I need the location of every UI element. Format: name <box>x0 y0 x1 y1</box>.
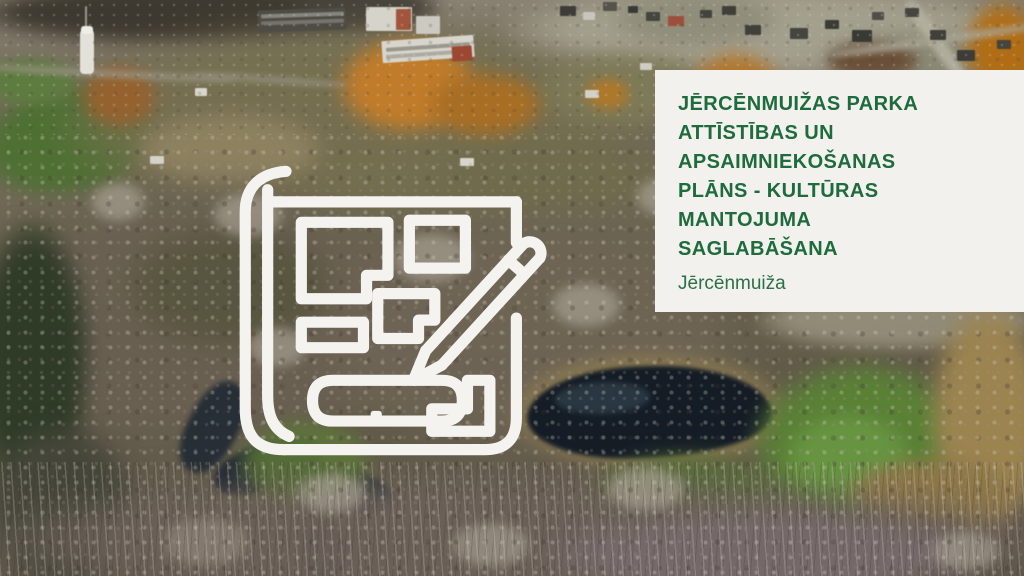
site-plan-with-pencil-icon <box>233 162 549 462</box>
plan-dot <box>371 411 382 422</box>
plan-room-small <box>409 220 465 268</box>
plan-room-step <box>378 294 435 339</box>
title-panel: JĒRCĒNMUIŽAS PARKA ATTĪSTĪBAS UN APSAIMN… <box>655 70 1024 312</box>
page-title: JĒRCĒNMUIŽAS PARKA ATTĪSTĪBAS UN APSAIMN… <box>678 90 1006 264</box>
plan-room-wide <box>301 322 363 347</box>
hero-banner: JĒRCĒNMUIŽAS PARKA ATTĪSTĪBAS UN APSAIMN… <box>0 0 1024 576</box>
site-plan-with-pencil-icon-svg <box>233 162 549 462</box>
pencil-eraser-divider <box>508 260 524 274</box>
pencil-eraser-cap <box>524 242 541 258</box>
plan-capsule <box>313 380 463 421</box>
plan-room-large <box>301 222 388 298</box>
blueprint-roll-inner <box>268 190 289 437</box>
page-subtitle: Jērcēnmuiža <box>678 272 1006 296</box>
